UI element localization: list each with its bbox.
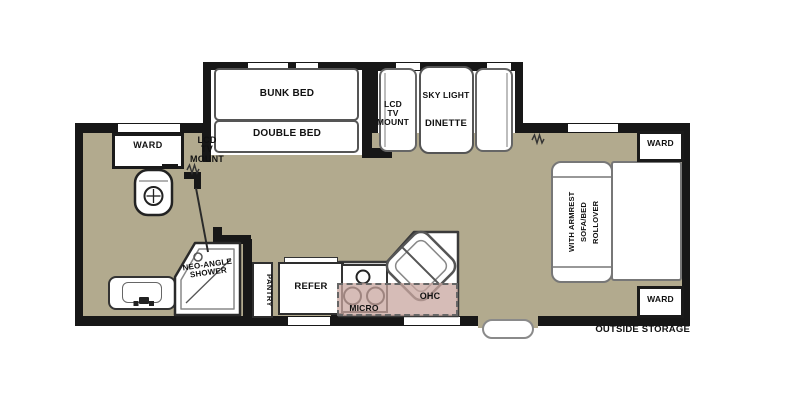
sofa-bed bbox=[611, 161, 682, 281]
lcd-tv-mount-bathroom-label: LCD TV MOUNT bbox=[183, 136, 231, 164]
sofa-label: ROLLOVER SOFA/BED WITH ARMREST bbox=[562, 172, 602, 272]
sofa-line-3: WITH ARMREST bbox=[566, 172, 578, 272]
window-bottom-kitchen bbox=[404, 317, 460, 325]
window-bottom-refer bbox=[288, 317, 330, 325]
refer-label: REFER bbox=[278, 282, 344, 292]
sink-basin bbox=[122, 282, 162, 303]
outside-storage-label: OUTSIDE STORAGE bbox=[556, 325, 690, 335]
mount-line: MOUNT bbox=[371, 118, 415, 127]
outer-wall-left bbox=[75, 123, 83, 326]
wardrobe-left-door-nub bbox=[162, 164, 178, 169]
mount-line: MOUNT bbox=[183, 155, 231, 164]
dinette-bench-right bbox=[475, 68, 513, 152]
ward-bottom-right-label: WARD bbox=[637, 295, 684, 304]
pantry-wall bbox=[243, 239, 252, 318]
bathroom-door-jamb-b bbox=[194, 172, 201, 189]
window-top-right bbox=[568, 124, 618, 132]
lcd-tv-mount-dinette-label: LCD TV MOUNT bbox=[371, 100, 415, 127]
ward-left-label: WARD bbox=[112, 141, 184, 150]
ohc-label: OHC bbox=[408, 292, 452, 301]
dinette-table bbox=[419, 66, 474, 154]
micro-label: MICRO bbox=[340, 304, 388, 313]
sofa-line-1: ROLLOVER bbox=[590, 172, 602, 272]
ward-top-right-label: WARD bbox=[637, 139, 684, 148]
double-bed-label: DOUBLE BED bbox=[227, 129, 347, 140]
sky-light-label: SKY LIGHT bbox=[413, 91, 479, 100]
rv-floorplan: BUNK BED DOUBLE BED WARD LCD TV MOUNT LC… bbox=[0, 0, 800, 400]
pantry-label: PANTRY bbox=[252, 264, 273, 316]
dinette-slideout-wall-right bbox=[515, 62, 523, 133]
sofa-line-2: SOFA/BED bbox=[578, 172, 590, 272]
bunk-bed-label: BUNK BED bbox=[227, 89, 347, 100]
window-top-left bbox=[118, 124, 180, 132]
dinette-label: DINETTE bbox=[413, 119, 479, 129]
entry-step bbox=[482, 319, 534, 339]
